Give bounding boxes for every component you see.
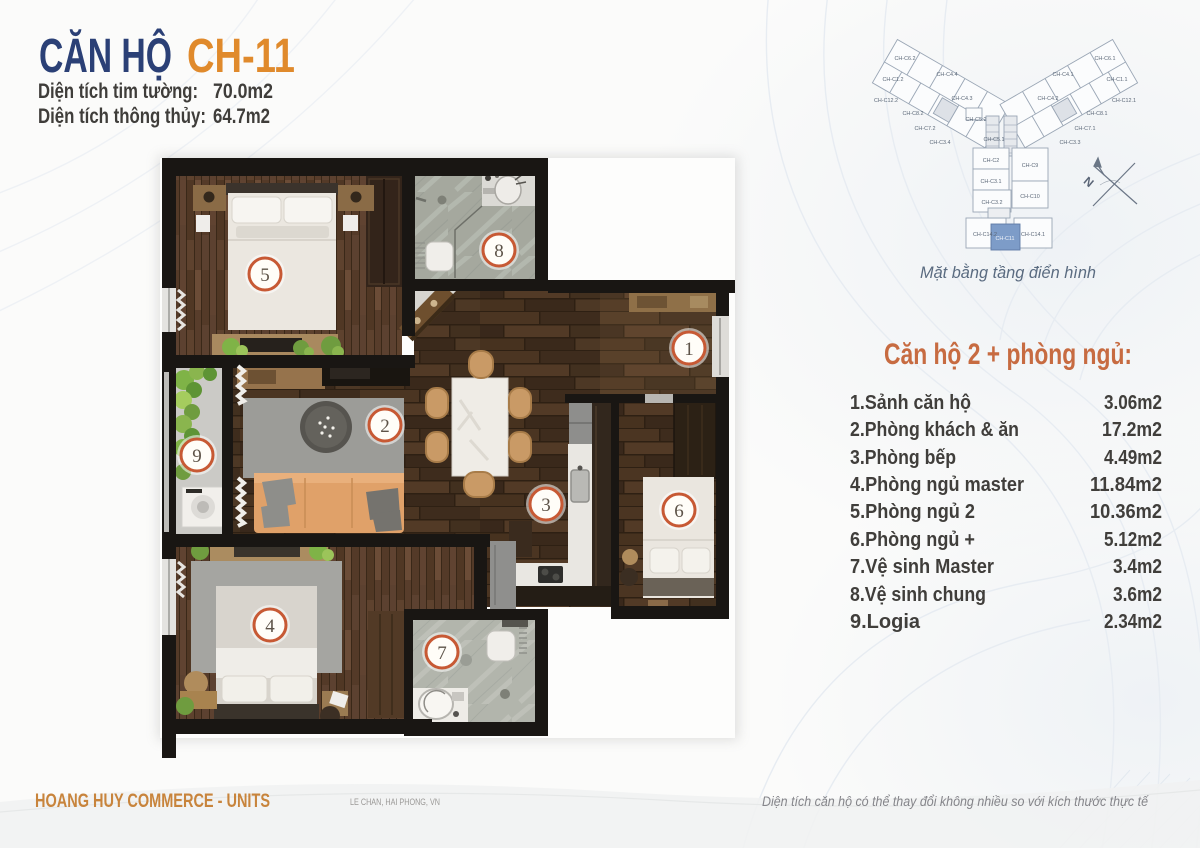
svg-text:Diện tích thông thủy:: Diện tích thông thủy:	[38, 105, 206, 128]
svg-text:2: 2	[380, 416, 390, 437]
svg-text:CH-C3.4: CH-C3.4	[930, 140, 951, 146]
svg-text:2.34m2: 2.34m2	[1104, 611, 1162, 633]
svg-text:Diện tích tim tường:: Diện tích tim tường:	[38, 80, 198, 103]
svg-text:CH-C3.3: CH-C3.3	[1060, 140, 1081, 146]
svg-text:4: 4	[265, 616, 275, 637]
svg-text:CH-C6.1: CH-C6.1	[1095, 56, 1116, 62]
svg-text:3.4m2: 3.4m2	[1113, 556, 1162, 578]
svg-text:1: 1	[684, 339, 694, 360]
svg-text:3: 3	[541, 495, 551, 516]
svg-text:CH-C7.1: CH-C7.1	[1075, 126, 1096, 132]
svg-text:CH-C7.2: CH-C7.2	[915, 126, 936, 132]
svg-text:5.Phòng ngủ 2: 5.Phòng ngủ 2	[850, 501, 975, 523]
svg-text:10.36m2: 10.36m2	[1090, 501, 1162, 523]
svg-text:4.49m2: 4.49m2	[1104, 447, 1162, 469]
svg-text:CH-C3.2: CH-C3.2	[982, 200, 1003, 206]
svg-text:70.0m2: 70.0m2	[213, 80, 273, 103]
svg-text:CH-C5.2: CH-C5.2	[966, 117, 987, 123]
svg-text:1.Sảnh căn hộ: 1.Sảnh căn hộ	[850, 392, 971, 414]
svg-text:Mặt bằng tầng điển hình: Mặt bằng tầng điển hình	[920, 263, 1096, 282]
svg-text:5.12m2: 5.12m2	[1104, 529, 1162, 551]
svg-text:CH-11: CH-11	[187, 30, 295, 83]
svg-text:CH-C4.3: CH-C4.3	[952, 96, 973, 102]
svg-text:CH-C14.2: CH-C14.2	[973, 232, 997, 238]
svg-text:CH-C12.2: CH-C12.2	[874, 98, 898, 104]
svg-text:CH-C8.2: CH-C8.2	[903, 111, 924, 117]
svg-text:CH-C10: CH-C10	[1020, 194, 1039, 200]
svg-text:64.7m2: 64.7m2	[213, 105, 270, 128]
svg-text:3.Phòng bếp: 3.Phòng bếp	[850, 447, 956, 469]
svg-text:HOANG HUY COMMERCE - UNITS: HOANG HUY COMMERCE - UNITS	[35, 791, 270, 812]
svg-text:9.Logia: 9.Logia	[850, 611, 921, 633]
svg-text:CĂN HỘ: CĂN HỘ	[39, 28, 172, 83]
svg-text:9: 9	[192, 446, 202, 467]
svg-text:CH-C2: CH-C2	[983, 158, 999, 164]
svg-text:CH-C4.2: CH-C4.2	[1038, 96, 1059, 102]
svg-text:8: 8	[494, 241, 504, 262]
svg-text:CH-C4.1: CH-C4.1	[1053, 72, 1074, 78]
svg-text:CH-C1.2: CH-C1.2	[883, 77, 904, 83]
svg-text:5: 5	[260, 265, 270, 286]
svg-text:3.06m2: 3.06m2	[1104, 392, 1162, 414]
svg-text:2.Phòng khách & ăn: 2.Phòng khách & ăn	[850, 419, 1019, 441]
svg-text:CH-C1.1: CH-C1.1	[1107, 77, 1128, 83]
svg-text:CH-C6.2: CH-C6.2	[895, 56, 916, 62]
svg-text:11.84m2: 11.84m2	[1090, 474, 1162, 496]
svg-text:CH-C14.1: CH-C14.1	[1021, 232, 1045, 238]
svg-text:LE CHAN, HAI PHONG, VN: LE CHAN, HAI PHONG, VN	[350, 797, 440, 807]
svg-text:CH-C4.4: CH-C4.4	[937, 72, 958, 78]
svg-text:6: 6	[674, 501, 684, 522]
svg-text:CH-C5.1: CH-C5.1	[984, 137, 1005, 143]
svg-text:8.Vệ sinh chung: 8.Vệ sinh chung	[850, 584, 986, 606]
svg-text:Diện tích căn hộ có thể thay đ: Diện tích căn hộ có thể thay đổi không n…	[762, 794, 1149, 809]
svg-text:CH-C12.1: CH-C12.1	[1112, 98, 1136, 104]
svg-text:7: 7	[437, 643, 447, 664]
svg-text:4.Phòng ngủ master: 4.Phòng ngủ master	[850, 474, 1024, 496]
svg-text:17.2m2: 17.2m2	[1102, 419, 1162, 441]
svg-text:7.Vệ sinh Master: 7.Vệ sinh Master	[850, 556, 994, 578]
svg-text:Căn hộ 2 + phòng ngủ:: Căn hộ 2 + phòng ngủ:	[884, 338, 1132, 371]
svg-text:CH-C11: CH-C11	[995, 236, 1014, 242]
svg-text:CH-C3.1: CH-C3.1	[981, 179, 1002, 185]
svg-text:6.Phòng ngủ +: 6.Phòng ngủ +	[850, 529, 975, 551]
svg-text:CH-C8.1: CH-C8.1	[1087, 111, 1108, 117]
svg-text:CH-C9: CH-C9	[1022, 163, 1038, 169]
svg-text:3.6m2: 3.6m2	[1113, 584, 1162, 606]
